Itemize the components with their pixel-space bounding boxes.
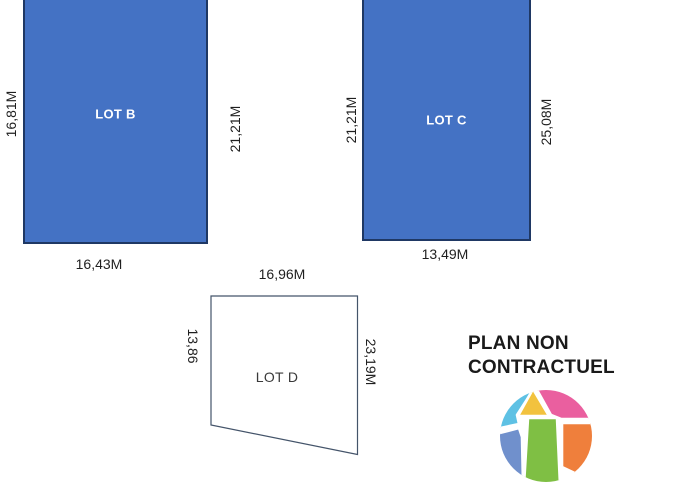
dim-lot-c-left: 21,21M [343, 97, 359, 144]
dim-lot-b-right: 21,21M [227, 106, 243, 153]
dim-lot-d-right: 23,19M [363, 339, 379, 386]
lot-c-label: LOT C [426, 113, 467, 128]
disclaimer-line-2: CONTRACTUEL [468, 356, 615, 380]
dim-lot-c-bottom: 13,49M [422, 246, 469, 262]
lot-d-label: LOT D [256, 369, 298, 385]
lot-b-label: LOT B [95, 107, 136, 122]
dim-lot-b-left: 16,81M [3, 91, 19, 138]
logo-facet-green [524, 418, 560, 483]
dim-lot-c-right: 25,08M [538, 99, 554, 146]
plan-page: { "plan": { "lot_b": { "name": "LOT B", … [0, 0, 700, 455]
lot-b-parcel: LOT B [23, 0, 208, 244]
disclaimer-line-1: PLAN NON [468, 332, 615, 356]
site-plan: LOT B LOT C LOT D 16,81M 21,21M 16,43M 2… [0, 0, 700, 455]
dim-lot-d-left: 13,86 [185, 328, 201, 363]
logo-facet-orange [562, 423, 593, 475]
lot-c-parcel: LOT C [362, 0, 531, 241]
disclaimer-text: PLAN NON CONTRACTUEL [468, 332, 615, 380]
dim-lot-b-bottom: 16,43M [76, 256, 123, 272]
dim-lot-d-top: 16,96M [259, 266, 306, 282]
agency-logo [499, 389, 593, 483]
logo-facet-blue [499, 428, 523, 483]
